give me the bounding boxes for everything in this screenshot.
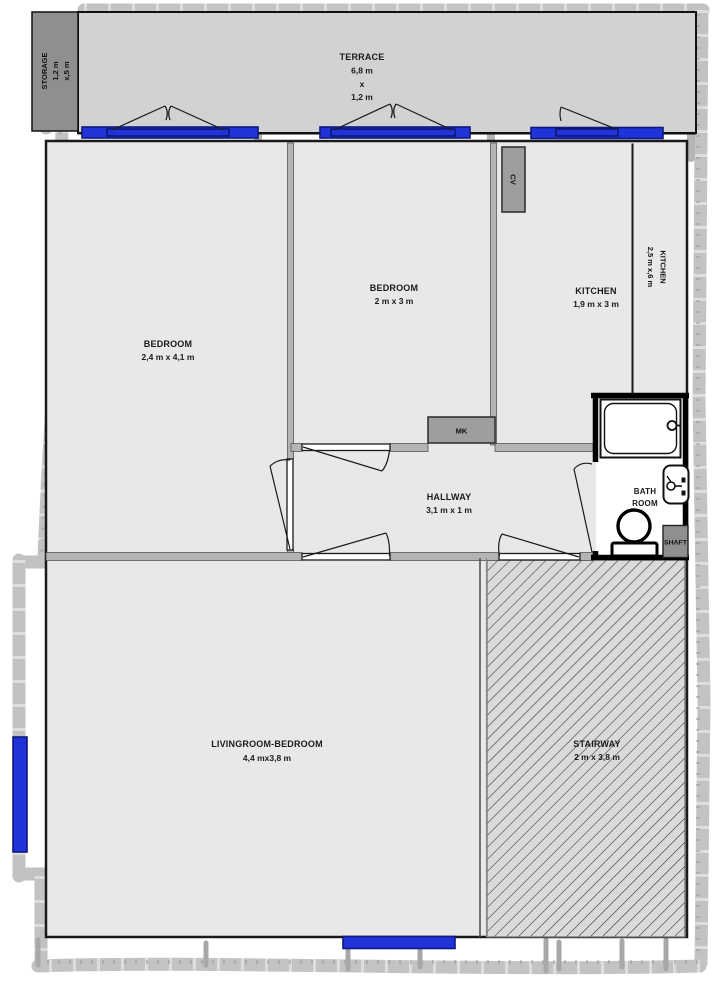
floor-plan-svg: CV MK bbox=[0, 0, 728, 987]
storage-label: STORAGE bbox=[40, 53, 49, 90]
bedroom-mid-label: BEDROOM bbox=[370, 283, 418, 293]
bedroom-mid-dims: 2 m x 3 m bbox=[375, 296, 414, 306]
hallway-label: HALLWAY bbox=[427, 492, 472, 502]
kitchen-annex-label: KITCHEN bbox=[659, 250, 668, 283]
room-terrace bbox=[78, 12, 696, 133]
window-terrace-mid-doorleaf bbox=[331, 129, 455, 136]
shaft-box: SHAFT bbox=[663, 526, 688, 558]
kitchen-dims: 1,9 m x 3 m bbox=[573, 299, 619, 309]
terrace-dim-a: 6,8 m bbox=[351, 66, 373, 76]
cv-label: CV bbox=[509, 174, 518, 184]
kitchen-annex-dims: 2,5 m x,6 m bbox=[646, 247, 655, 288]
livingroom-dims: 4,4 mx3,8 m bbox=[243, 753, 292, 763]
hallway-dims: 3,1 m x 1 m bbox=[426, 505, 472, 515]
bathroom-label-1: BATH bbox=[634, 487, 656, 496]
terrace-label: TERRACE bbox=[340, 52, 385, 62]
bathroom-label-2: ROOM bbox=[632, 499, 658, 508]
window-terrace-left-doorleaf bbox=[107, 129, 229, 136]
storage-dim-a: 1,2 m bbox=[51, 61, 60, 81]
kitchen-label: KITCHEN bbox=[575, 286, 616, 296]
terrace-dim-x: x bbox=[360, 79, 365, 89]
livingroom-label: LIVINGROOM-BEDROOM bbox=[211, 739, 323, 749]
sink bbox=[664, 466, 689, 504]
bathtub bbox=[601, 400, 682, 458]
window-terrace-right-doorleaf bbox=[556, 129, 618, 136]
stairway-dims: 2 m x 3,8 m bbox=[574, 752, 620, 762]
cv-box: CV bbox=[502, 147, 525, 212]
mk-box: MK bbox=[428, 417, 495, 443]
stairway-label: STAIRWAY bbox=[573, 739, 620, 749]
mk-label: MK bbox=[456, 427, 468, 436]
terrace-dim-b: 1,2 m bbox=[351, 92, 373, 102]
shaft-label: SHAFT bbox=[664, 540, 687, 547]
bedroom-left-label: BEDROOM bbox=[144, 339, 192, 349]
floor-plan-page: CV MK bbox=[0, 0, 728, 987]
room-bathroom: SHAFT bbox=[591, 393, 689, 560]
bedroom-left-dims: 2,4 m x 4,1 m bbox=[142, 352, 195, 362]
window-left-bay bbox=[13, 737, 27, 852]
storage-dim-b: x,5 m bbox=[62, 61, 71, 81]
window-livingroom-bottom bbox=[343, 937, 455, 949]
